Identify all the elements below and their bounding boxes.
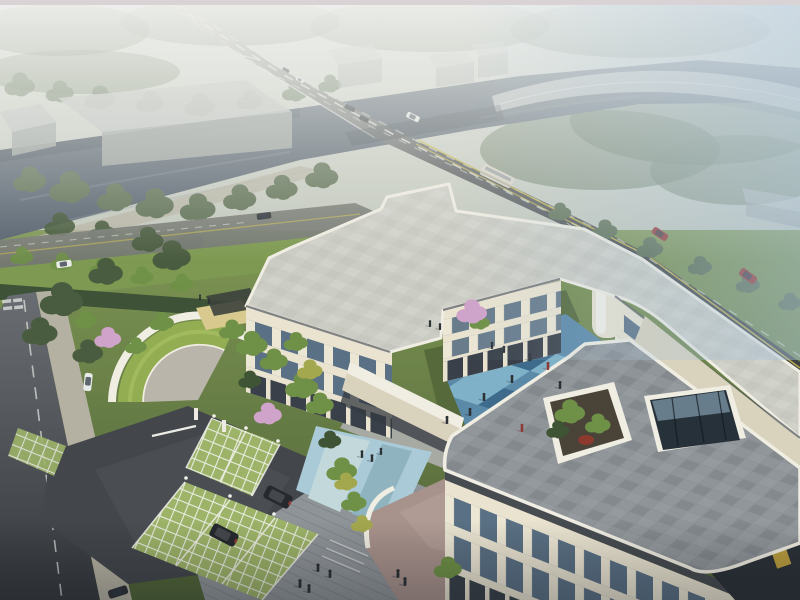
- aerial-rendering-canvas: [0, 0, 800, 600]
- bottom-vignette: [0, 520, 800, 600]
- top-border-strip: [0, 0, 800, 5]
- right-blue-haze: [460, 0, 800, 360]
- rendering-image: [0, 0, 800, 600]
- red-shrub: [578, 435, 594, 445]
